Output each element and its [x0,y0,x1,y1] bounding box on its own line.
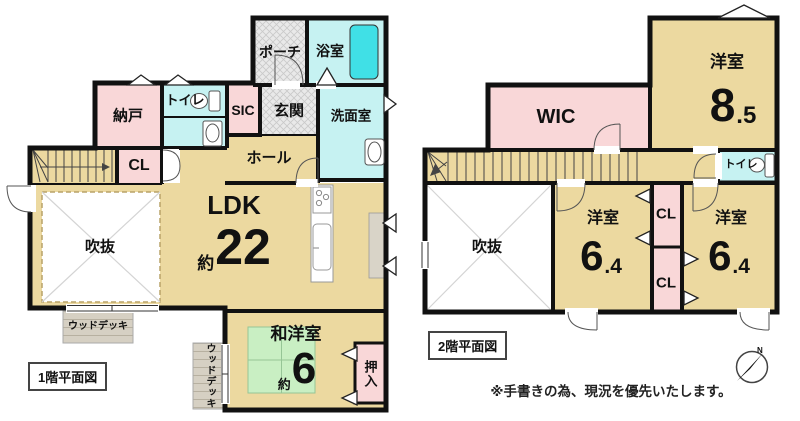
label-bedroom-main-area: 8 .5 [710,82,757,128]
label-wic: WIC [537,107,576,127]
floor2-title: 2階平面図 [428,331,507,360]
label-ldk: LDK 約 22 [197,192,271,272]
washitsu-area: 6 [292,347,316,391]
label-oshiire: 押入 [364,360,377,388]
label-wooddeck-east: ウッドデッキ [204,343,214,409]
label-porch: ポーチ [259,45,301,59]
svg-text:N: N [757,346,763,355]
label-cl2-south: CL [656,276,676,291]
corridor [180,148,227,184]
label-nando: 納戸 [113,109,143,124]
label-washitsu: 和洋室 [271,326,322,343]
label-bedroom-east: 洋室 [715,211,747,227]
label-toilet2: トイレ [725,160,758,171]
disclaimer-note: ※手書きの為、現況を優先いたします。 [490,380,731,400]
label-bedroom-main: 洋室 [710,54,744,71]
floor1-title: 1階平面図 [28,362,107,391]
bedroom-main-area: 8 [710,82,736,128]
gable-window-icon [128,75,155,85]
ldk-approx: 約 [197,255,214,272]
kitchen-counter [311,185,333,282]
label-cl1: CL [128,158,149,174]
bedroom-east-area: 6 [708,235,731,277]
label-hall: ホール [246,151,291,166]
floorplan-canvas: N 納戸 トイレ SIC ポーチ 浴室 玄関 洗面室 CL ホール 吹抜 LDK… [0,0,800,421]
label-bedroom-west: 洋室 [587,211,619,227]
label-genkan: 玄関 [274,104,304,119]
stove-icon [313,187,331,213]
kitchen-sink-icon [313,224,331,270]
label-fukinuke1: 吹抜 [85,240,115,255]
sink-icon-senmen [365,139,384,165]
room-senmen [318,85,386,180]
label-fukinuke2: 吹抜 [472,240,502,255]
ldk-area: 22 [215,222,271,272]
gable-window-icon [165,75,192,85]
label-bedroom-west-area: 6 .4 [580,235,622,277]
floorplan-drawing: N [0,0,800,421]
label-sic: SIC [231,103,254,117]
washitsu-approx: 約 [278,378,291,391]
label-senmen: 洗面室 [331,109,372,123]
bathtub-icon [350,25,378,79]
bedroom-west-area: 6 [580,235,603,277]
window-arrow-icon [384,95,396,113]
label-bedroom-east-area: 6 .4 [708,235,750,277]
gable-window-icon [718,5,770,18]
label-cl2-north: CL [656,207,676,222]
label-bath: 浴室 [316,44,344,58]
compass-icon: N [737,346,768,383]
sink-icon-powder [203,121,222,146]
hall2-stairs [425,150,720,183]
bedroom-main-frac: .5 [736,104,756,128]
label-toilet1: トイレ [165,94,204,107]
label-washitsu-area: 約 6 [278,347,317,391]
label-wooddeck-south: ウッドデッキ [68,322,128,332]
bedroom-west-frac: .4 [604,256,622,277]
bedroom-east-frac: .4 [732,256,750,277]
ldk-name: LDK [197,192,271,218]
